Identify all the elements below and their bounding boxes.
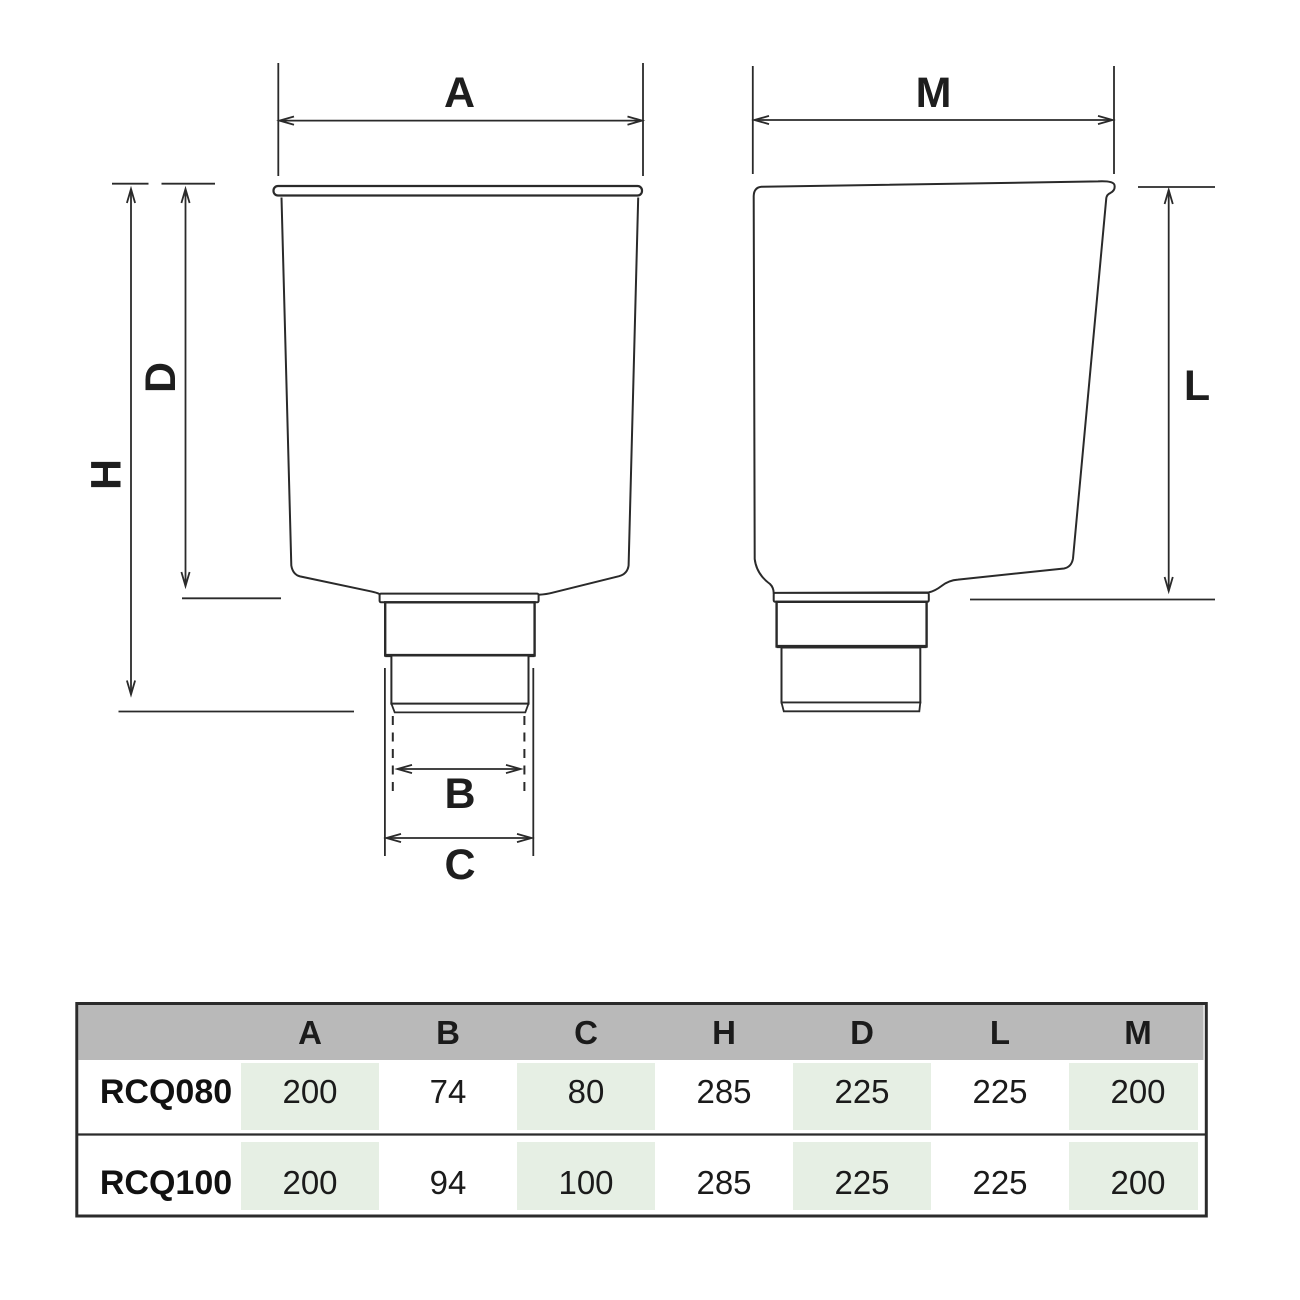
svg-text:225: 225: [834, 1164, 889, 1201]
svg-text:L: L: [1184, 362, 1210, 410]
svg-text:200: 200: [1110, 1073, 1165, 1110]
svg-text:80: 80: [568, 1073, 605, 1110]
svg-text:H: H: [712, 1014, 736, 1051]
svg-text:100: 100: [558, 1164, 613, 1201]
svg-text:285: 285: [696, 1164, 751, 1201]
svg-text:M: M: [916, 69, 952, 117]
svg-text:H: H: [83, 459, 131, 490]
svg-text:285: 285: [696, 1073, 751, 1110]
svg-text:RCQ080: RCQ080: [100, 1073, 232, 1111]
svg-text:225: 225: [972, 1164, 1027, 1201]
svg-text:225: 225: [834, 1073, 889, 1110]
svg-text:RCQ100: RCQ100: [100, 1164, 232, 1202]
svg-text:A: A: [298, 1014, 322, 1051]
svg-text:74: 74: [430, 1073, 467, 1110]
svg-text:A: A: [444, 69, 475, 117]
svg-text:C: C: [574, 1014, 598, 1051]
svg-text:200: 200: [282, 1164, 337, 1201]
svg-text:D: D: [850, 1014, 874, 1051]
svg-text:C: C: [444, 841, 475, 889]
svg-text:200: 200: [1110, 1164, 1165, 1201]
svg-text:D: D: [137, 362, 185, 393]
svg-text:B: B: [436, 1014, 460, 1051]
svg-text:L: L: [990, 1014, 1010, 1051]
svg-text:200: 200: [282, 1073, 337, 1110]
svg-text:94: 94: [430, 1164, 467, 1201]
svg-text:M: M: [1124, 1014, 1152, 1051]
svg-text:B: B: [444, 770, 475, 818]
svg-text:225: 225: [972, 1073, 1027, 1110]
